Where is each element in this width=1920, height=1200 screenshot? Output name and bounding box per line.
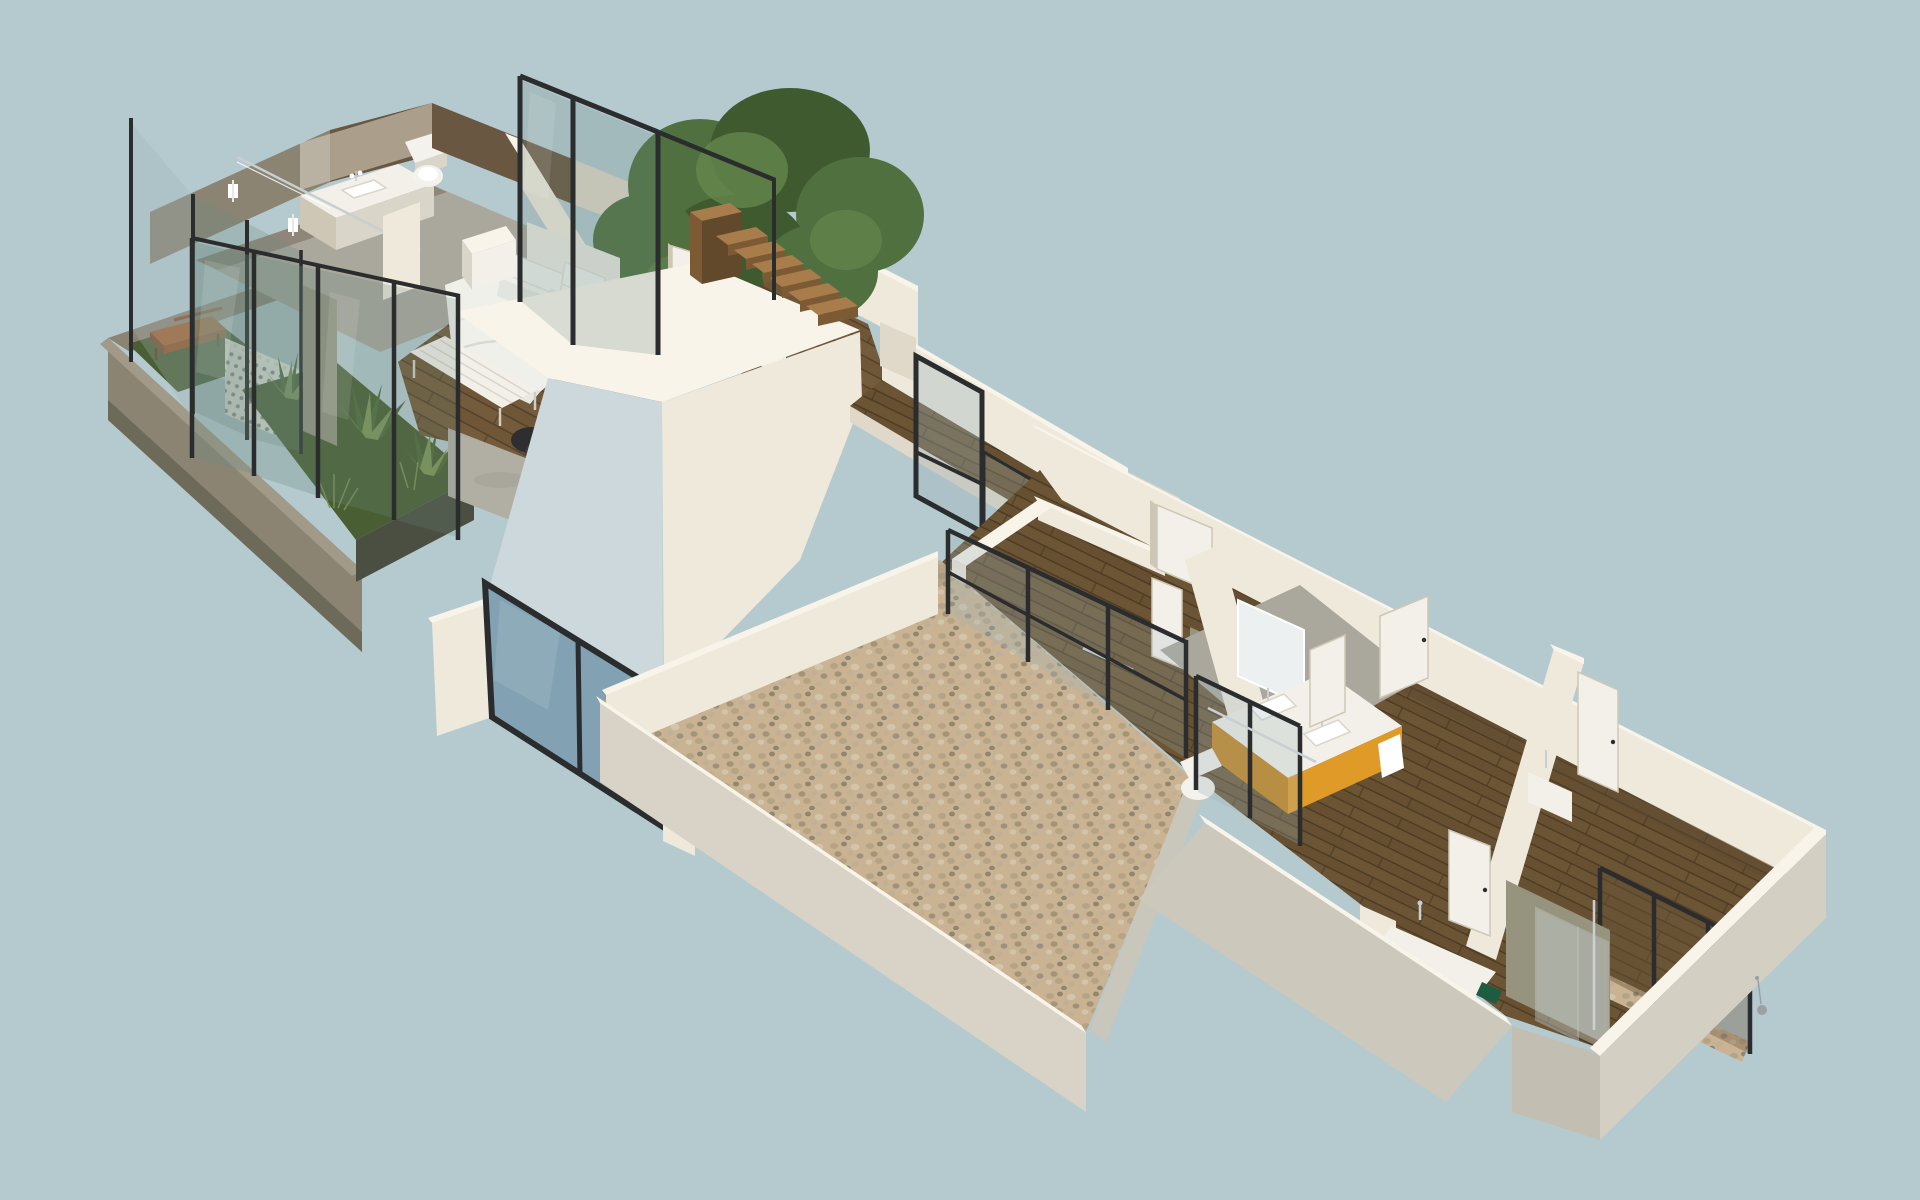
door-bedroom-3-front — [1449, 830, 1490, 936]
hall-door-1 — [1310, 635, 1345, 727]
wall-fragment — [432, 603, 492, 736]
isometric-floorplan — [0, 0, 1920, 1200]
floorplan-render-canvas — [0, 0, 1920, 1200]
open-door-bedroom-3 — [1578, 672, 1618, 792]
